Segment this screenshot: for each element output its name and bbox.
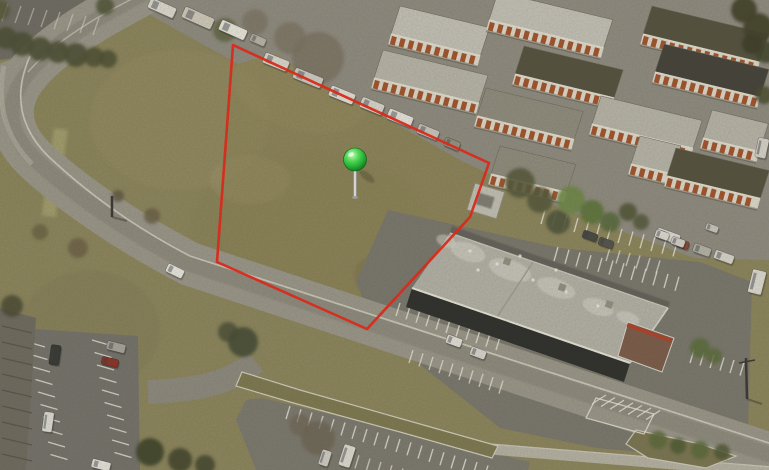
tree (218, 322, 238, 342)
storage-unit-door (392, 37, 394, 45)
storage-unit-door (436, 47, 438, 55)
roof-vent (531, 278, 534, 281)
storage-unit-door (501, 179, 503, 187)
storage-unit-door (611, 131, 613, 139)
utility-pole (746, 358, 747, 399)
storage-unit-door (721, 191, 723, 199)
storage-unit-door (551, 37, 553, 45)
storage-unit-door (686, 183, 688, 191)
storage-unit-door (566, 140, 568, 148)
tree (706, 348, 722, 364)
roof-vent (518, 254, 521, 257)
storage-unit-door (453, 51, 455, 59)
storage-unit-door (543, 35, 545, 43)
roof-vent (596, 304, 599, 307)
storage-unit-door (490, 23, 492, 31)
tree (527, 187, 553, 213)
storage-unit-door (577, 91, 579, 99)
storage-unit-door (375, 81, 377, 89)
roof-vent (468, 249, 471, 252)
tree (68, 238, 88, 258)
tree (714, 444, 730, 460)
storage-unit-door (712, 189, 714, 197)
tree (633, 214, 649, 230)
birdseye-aerial-view (0, 0, 769, 470)
storage-unit-door (748, 151, 750, 159)
storage-unit-door (410, 89, 412, 97)
tree (670, 438, 686, 454)
pin-stick (354, 168, 357, 197)
storage-unit-door (744, 96, 746, 104)
tree (691, 441, 709, 459)
storage-unit-door (644, 37, 646, 45)
roof-vent (564, 290, 567, 293)
storage-unit-door (516, 77, 518, 85)
storage-unit-door (487, 121, 489, 129)
storage-unit-door (454, 100, 456, 108)
storage-unit-door (542, 83, 544, 91)
storage-unit-door (641, 169, 643, 177)
storage-unit-door (595, 48, 597, 56)
storage-unit-door (419, 91, 421, 99)
storage-unit-door (586, 94, 588, 102)
storage-unit-door (513, 127, 515, 135)
storage-unit-door (525, 79, 527, 87)
storage-unit-door (700, 85, 702, 93)
storage-unit-door (534, 33, 536, 41)
storage-unit-door (551, 85, 553, 93)
storage-unit-door (703, 187, 705, 195)
storage-unit-door (632, 167, 634, 175)
storage-unit-door (717, 89, 719, 97)
storage-unit-door (668, 179, 670, 187)
storage-unit-door (436, 95, 438, 103)
storage-unit-door (471, 104, 473, 112)
storage-unit-door (418, 43, 420, 51)
tree (144, 208, 160, 224)
storage-unit-door (738, 196, 740, 204)
storage-unit-door (508, 27, 510, 35)
storage-unit-door (471, 56, 473, 64)
aerial-map-canvas[interactable] (0, 0, 769, 470)
storage-unit-door (557, 138, 559, 146)
storage-unit-door (522, 129, 524, 137)
tree (289, 414, 311, 436)
storage-unit-door (401, 87, 403, 95)
roof-vent (476, 268, 479, 271)
storage-unit-door (650, 171, 652, 179)
storage-unit-door (560, 40, 562, 48)
pin-base (352, 196, 358, 199)
tree (742, 34, 762, 54)
storage-unit-door (682, 81, 684, 89)
storage-unit-door (445, 98, 447, 106)
storage-unit-door (496, 123, 498, 131)
storage-unit-door (658, 173, 660, 181)
storage-unit-door (516, 29, 518, 37)
storage-unit-door (578, 44, 580, 52)
storage-unit-door (504, 125, 506, 133)
storage-unit-door (384, 83, 386, 91)
storage-unit-door (445, 49, 447, 57)
storage-unit-door (525, 31, 527, 39)
storage-unit-door (713, 143, 715, 151)
tree (32, 224, 48, 240)
storage-unit-door (619, 133, 621, 141)
storage-unit-door (393, 85, 395, 93)
storage-unit-door (539, 133, 541, 141)
storage-unit-door (534, 81, 536, 89)
roof-vent (495, 262, 498, 265)
storage-unit-door (747, 198, 749, 206)
storage-unit-door (401, 39, 403, 47)
storage-unit-door (628, 135, 630, 143)
storage-unit-door (492, 177, 494, 185)
storage-unit-door (569, 89, 571, 97)
storage-unit-door (499, 25, 501, 33)
storage-unit-door (553, 191, 555, 199)
storage-unit-door (548, 136, 550, 144)
storage-unit-door (569, 42, 571, 50)
storage-unit-door (722, 145, 724, 153)
storage-unit-door (478, 119, 480, 127)
storage-unit-door (739, 149, 741, 157)
tree (546, 210, 570, 234)
tree (136, 438, 164, 466)
storage-unit-door (709, 87, 711, 95)
storage-unit-door (463, 102, 465, 110)
tree (274, 22, 306, 54)
tree (600, 212, 620, 232)
pin-ball (344, 148, 367, 171)
tree (99, 50, 117, 68)
tree (112, 190, 124, 202)
storage-unit-door (735, 94, 737, 102)
storage-unit-door (665, 77, 667, 85)
storage-unit-door (691, 83, 693, 91)
storage-unit-door (674, 79, 676, 87)
storage-unit-door (427, 45, 429, 53)
storage-unit-door (752, 98, 754, 106)
storage-unit-door (653, 39, 655, 47)
storage-unit-door (730, 147, 732, 155)
storage-unit-door (560, 87, 562, 95)
storage-unit-door (586, 46, 588, 54)
storage-unit-door (531, 131, 533, 139)
storage-unit-door (593, 127, 595, 135)
storage-unit-door (595, 96, 597, 104)
storage-unit-door (704, 141, 706, 149)
storage-unit-door (694, 185, 696, 193)
storage-unit-door (602, 129, 604, 137)
storage-unit-door (726, 92, 728, 100)
storage-unit-door (410, 41, 412, 49)
storage-unit-door (428, 93, 430, 101)
storage-unit-door (677, 181, 679, 189)
tree (649, 431, 667, 449)
tree (1, 295, 23, 317)
storage-unit-door (729, 193, 731, 201)
storage-unit-door (462, 54, 464, 62)
storage-unit-door (656, 75, 658, 83)
roof-vent (554, 268, 557, 271)
